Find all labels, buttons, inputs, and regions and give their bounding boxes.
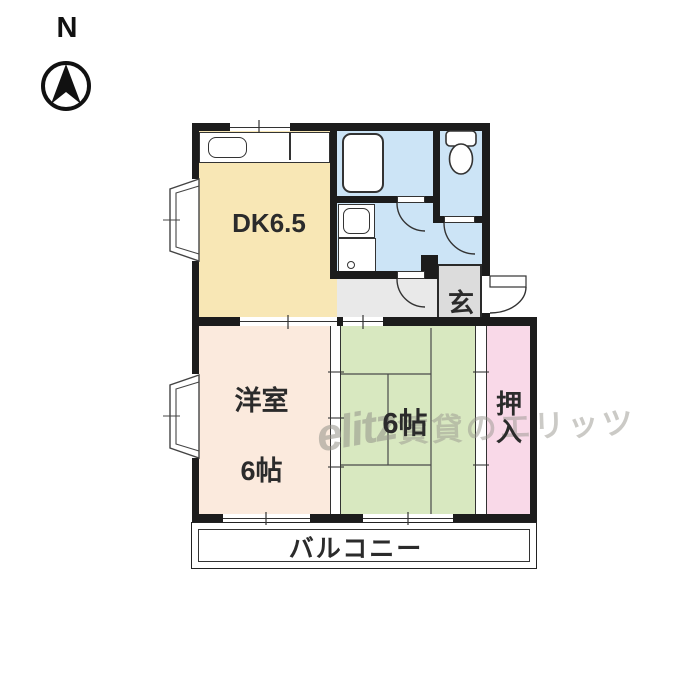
window-tatami-balcony [363, 514, 453, 522]
wall-segment [482, 123, 490, 276]
window-pane-line [230, 127, 290, 128]
window-western-balcony [223, 514, 310, 522]
drain-icon [347, 261, 355, 269]
room-label-tatami: 6帖 [364, 400, 446, 442]
wall-segment [192, 514, 223, 522]
room-label-western: 洋室 6帖 [214, 384, 309, 489]
wall-segment [330, 196, 397, 203]
sliding-door-dk-western [240, 317, 337, 326]
sliding-door-west-tatami [330, 320, 341, 518]
room-label-western-line1: 洋室 [235, 386, 289, 416]
sliding-track-line [343, 321, 383, 322]
room-label-entrance: 玄 [446, 283, 476, 320]
floor-plan-canvas: N [0, 0, 700, 700]
wall-segment [453, 514, 537, 522]
washbasin-bowl [343, 208, 370, 234]
door-toilet [444, 216, 475, 223]
bathtub [342, 133, 384, 193]
bay-window-opening-western [192, 374, 199, 458]
wall-segment [433, 123, 440, 223]
north-arrow-icon [51, 64, 81, 104]
door-bathroom [397, 196, 425, 203]
sliding-door-tatami-closet [475, 320, 487, 518]
door-washroom [397, 271, 425, 279]
wall-segment [330, 271, 397, 279]
wall-segment [425, 196, 433, 203]
window-kitchen [230, 123, 290, 131]
entrance-door-opening [482, 276, 490, 313]
compass-circle [43, 63, 89, 109]
window-pane-line [223, 518, 310, 519]
wall-segment [192, 317, 240, 326]
wall-segment [530, 317, 537, 522]
wall-segment [310, 514, 363, 522]
bay-window-opening-dk [192, 179, 199, 261]
room-floor-hallway [337, 279, 437, 317]
room-label-western-line2: 6帖 [240, 456, 282, 486]
entrance-door-leaf [490, 276, 526, 287]
sliding-track-line [240, 321, 337, 322]
room-label-dk: DK6.5 [224, 208, 314, 239]
counter-divider [289, 133, 291, 160]
window-pane-line [363, 518, 453, 519]
kitchen-sink [208, 137, 247, 158]
compass-north-label: N [50, 12, 84, 45]
washing-machine-pan [338, 238, 376, 272]
wall-segment [475, 216, 482, 223]
sliding-door-hall-tatami [343, 317, 383, 326]
room-label-balcony: バルコニー [250, 529, 462, 565]
wall-segment [192, 123, 199, 179]
wall-segment [192, 458, 199, 522]
room-label-closet: 押入 [494, 390, 524, 446]
door-arc-entrance [490, 287, 526, 313]
